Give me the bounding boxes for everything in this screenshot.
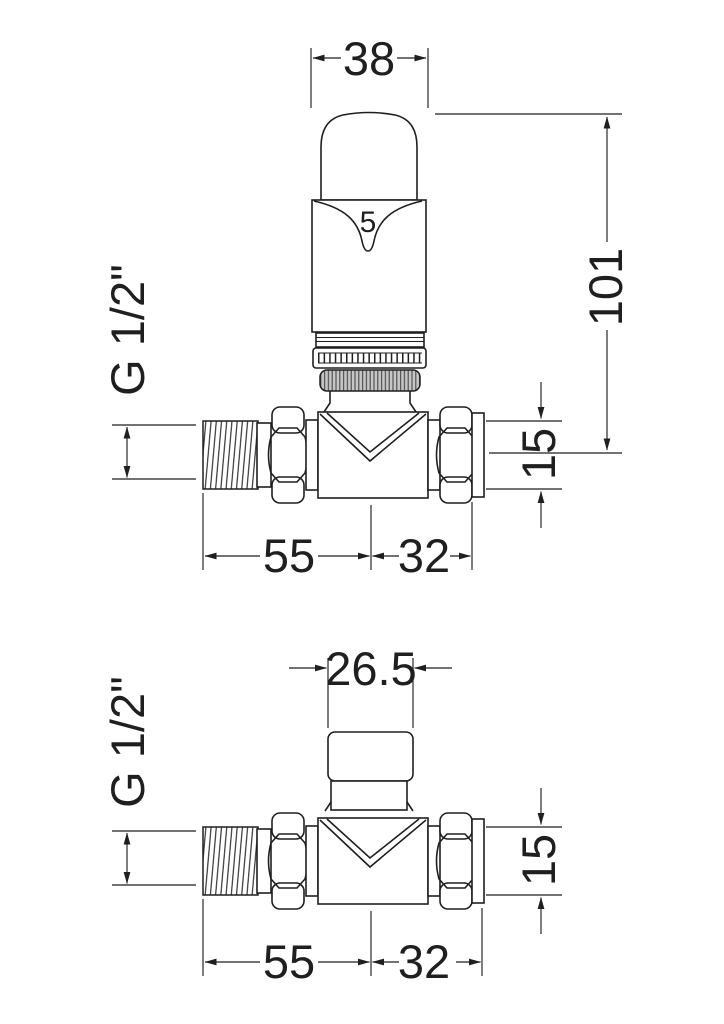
cap-neck	[331, 781, 407, 810]
thread-size-label-top: G 1/2"	[101, 264, 154, 396]
dim-overall-height: 101	[435, 114, 632, 453]
dim-thread-od-bottom	[112, 831, 196, 885]
dim-label-15-top: 15	[512, 428, 565, 480]
head-setting-number: 5	[360, 206, 377, 239]
thread-size-label-bottom: G 1/2"	[101, 676, 154, 808]
lockshield-cap	[325, 732, 413, 811]
dim-lengths-top: 55 32	[203, 493, 472, 582]
dim-label-32-top: 32	[398, 529, 450, 582]
dim-label-55-bottom: 55	[263, 935, 315, 988]
valve-body-assembly-top	[203, 407, 484, 503]
dim-pipe-bottom: 15	[486, 788, 565, 934]
dim-pipe-top: 15	[486, 382, 565, 528]
cap-top	[328, 732, 413, 781]
thermostatic-head: 5	[312, 113, 426, 333]
dim-thread-od-top	[112, 425, 196, 479]
dim-label-15-bottom: 15	[512, 834, 565, 886]
lockshield-valve-view: 26.5 G 1/2" 15 55 3	[101, 642, 565, 988]
head-dome	[321, 113, 417, 201]
dim-label-26-5: 26.5	[325, 642, 416, 695]
dim-label-32-bottom: 32	[398, 935, 450, 988]
head-neck	[324, 391, 416, 412]
valve-technical-drawing: 5 38 101	[0, 0, 724, 1024]
dim-label-38: 38	[343, 32, 395, 85]
dim-label-55-top: 55	[263, 529, 315, 582]
technical-drawing-page: 5 38 101	[0, 0, 724, 1024]
dim-head-width: 38	[311, 32, 428, 108]
head-collar	[313, 333, 426, 412]
dim-label-101: 101	[579, 248, 632, 326]
dim-cap-width: 26.5	[289, 642, 452, 728]
thermostatic-valve-view: 5 38 101	[101, 32, 632, 582]
dim-lengths-bottom: 55 32	[203, 899, 482, 988]
knurled-ring	[320, 370, 420, 391]
valve-body-assembly-bottom	[203, 813, 484, 909]
